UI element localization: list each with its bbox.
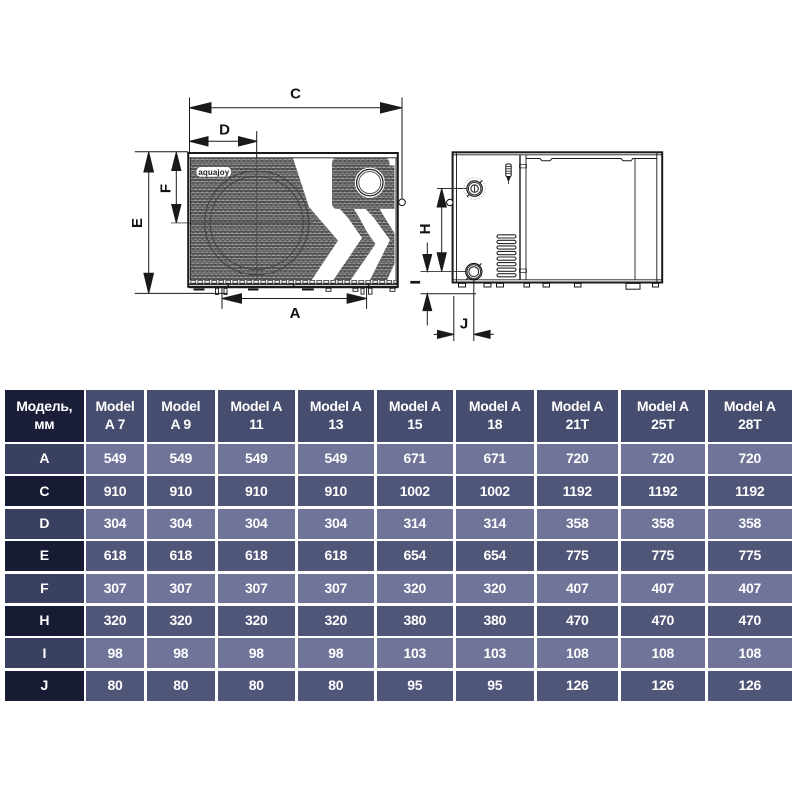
- svg-text:H: H: [417, 224, 434, 235]
- svg-text:F: F: [158, 184, 175, 193]
- svg-text:C: C: [290, 86, 301, 103]
- svg-text:aquajoy: aquajoy: [198, 168, 229, 177]
- svg-text:D: D: [219, 122, 230, 139]
- svg-text:A: A: [290, 305, 301, 322]
- svg-text:J: J: [460, 316, 468, 333]
- svg-text:E: E: [129, 218, 146, 228]
